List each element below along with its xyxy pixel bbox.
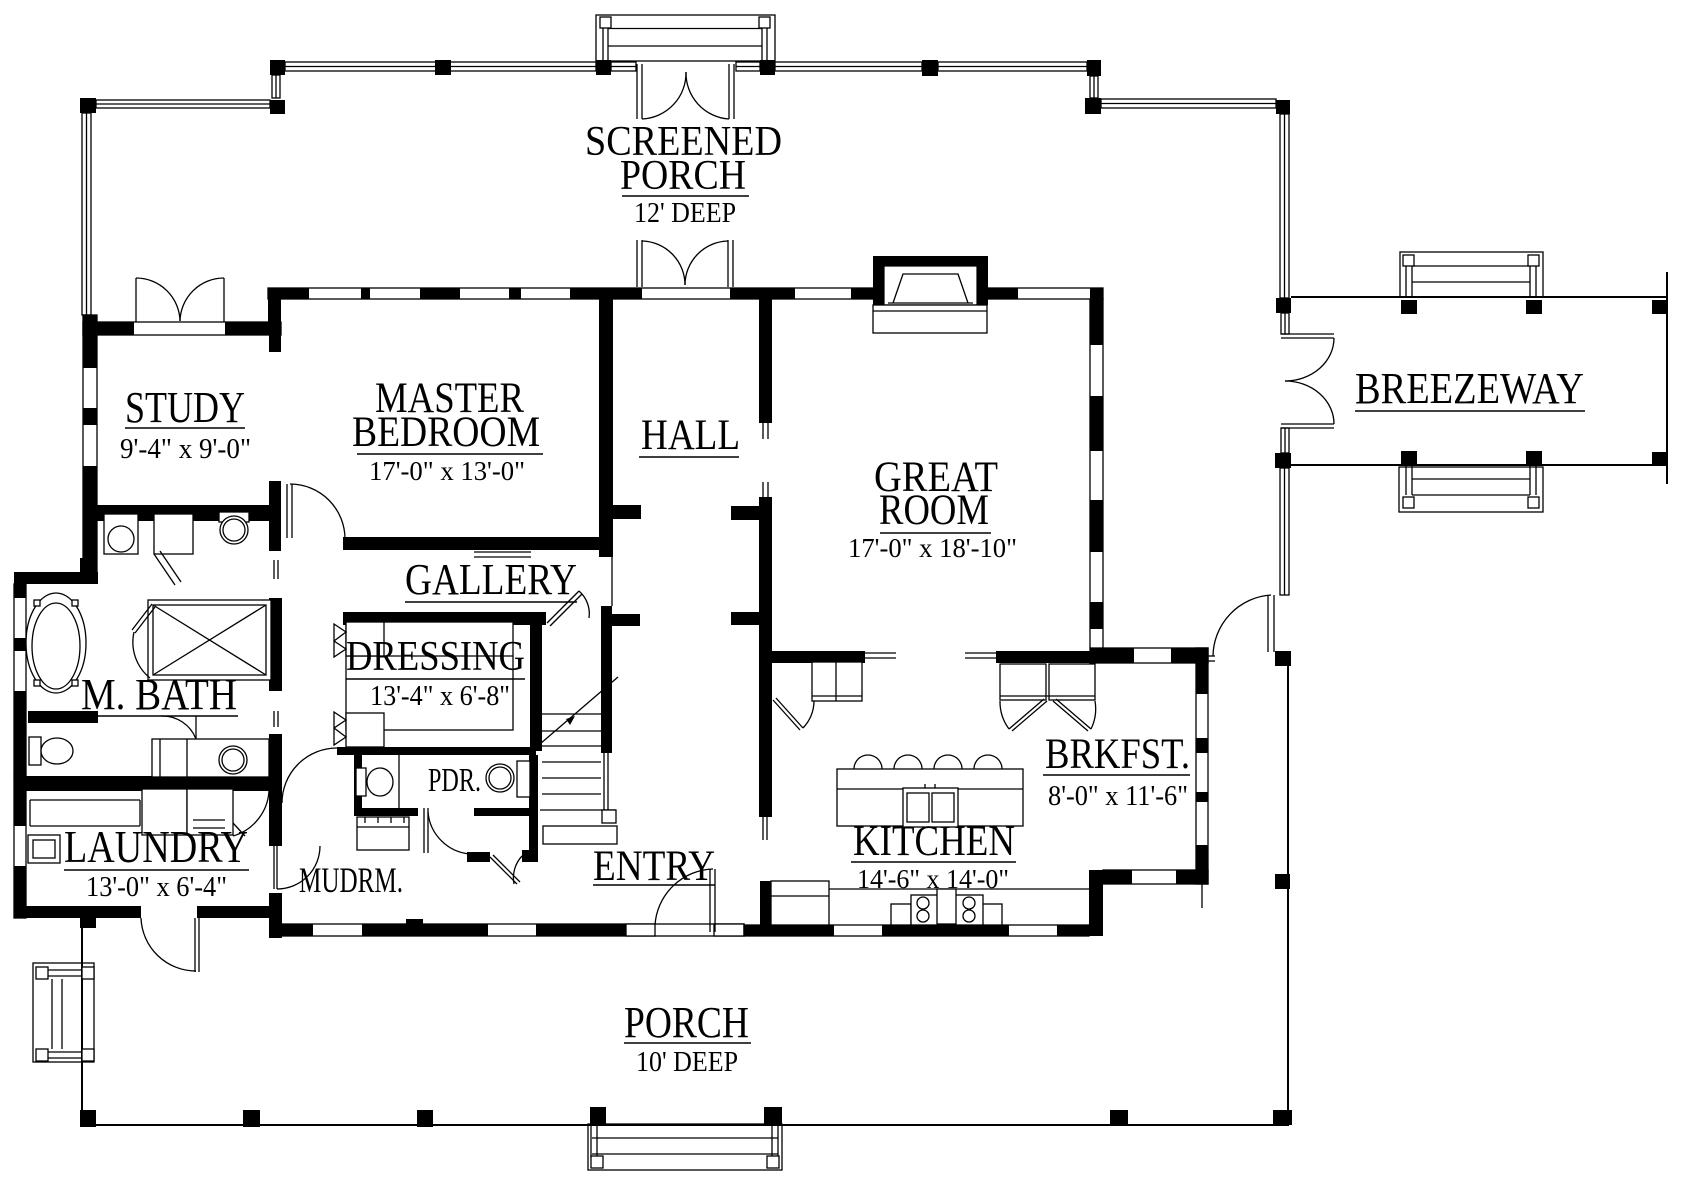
- svg-text:STUDY: STUDY: [125, 383, 245, 432]
- svg-text:M. BATH: M. BATH: [81, 670, 237, 719]
- svg-text:13'-0" x 6'-4": 13'-0" x 6'-4": [86, 872, 227, 903]
- svg-text:LAUNDRY: LAUNDRY: [64, 821, 248, 872]
- svg-text:KITCHEN: KITCHEN: [853, 818, 1015, 865]
- svg-text:14'-6" x 14'-0": 14'-6" x 14'-0": [857, 864, 1009, 894]
- svg-text:BEDROOM: BEDROOM: [352, 409, 540, 456]
- svg-text:BREEZEWAY: BREEZEWAY: [1355, 364, 1584, 413]
- svg-text:13'-4" x 6'-8": 13'-4" x 6'-8": [370, 681, 510, 712]
- svg-text:10' DEEP: 10' DEEP: [636, 1047, 738, 1078]
- svg-text:ROOM: ROOM: [879, 487, 989, 534]
- svg-text:PORCH: PORCH: [624, 998, 749, 1047]
- svg-text:PORCH: PORCH: [620, 153, 746, 199]
- svg-text:8'-0" x 11'-6": 8'-0" x 11'-6": [1048, 781, 1188, 812]
- svg-text:12' DEEP: 12' DEEP: [634, 198, 736, 229]
- svg-text:9'-4" x 9'-0": 9'-4" x 9'-0": [120, 434, 251, 465]
- svg-text:HALL: HALL: [641, 412, 740, 459]
- svg-text:17'-0" x 13'-0": 17'-0" x 13'-0": [369, 456, 525, 486]
- svg-text:17'-0" x 18'-10": 17'-0" x 18'-10": [848, 533, 1017, 563]
- svg-text:MUDRM.: MUDRM.: [299, 860, 403, 900]
- svg-text:PDR.: PDR.: [428, 762, 481, 799]
- svg-text:ENTRY: ENTRY: [593, 843, 715, 890]
- svg-text:BRKFST.: BRKFST.: [1045, 731, 1190, 778]
- svg-text:GALLERY: GALLERY: [405, 555, 577, 604]
- svg-text:DRESSING: DRESSING: [346, 634, 525, 680]
